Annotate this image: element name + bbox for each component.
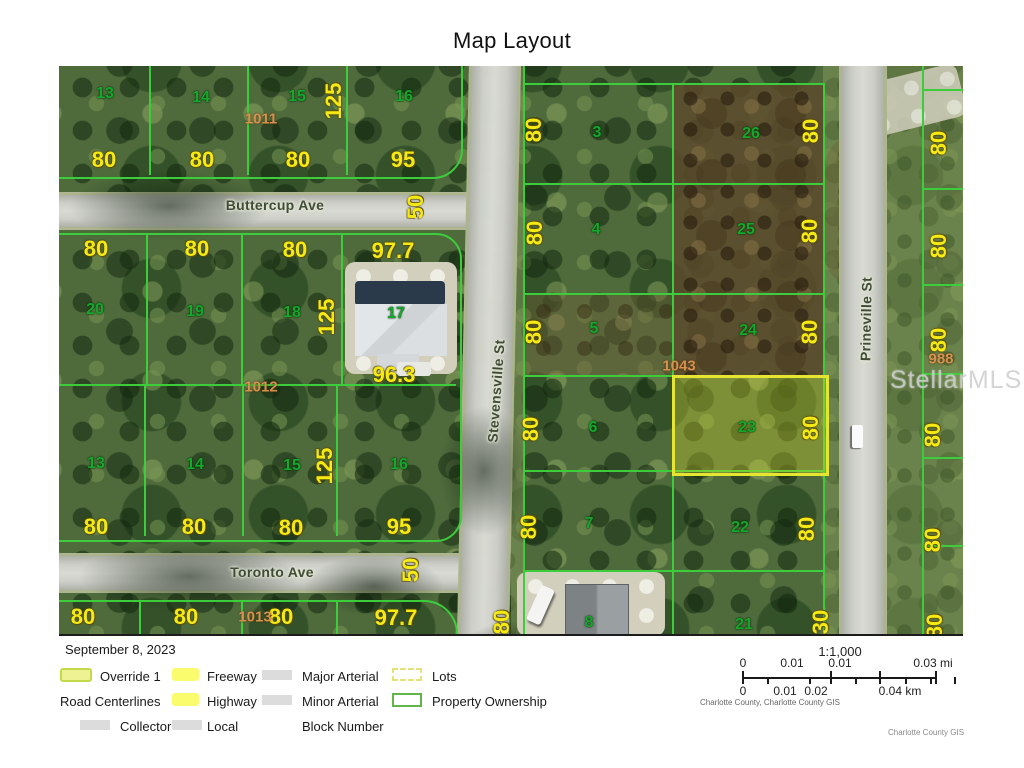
dimension-label: 80 — [185, 236, 209, 262]
legend-label: Local — [207, 719, 238, 734]
street-label: Buttercup Ave — [226, 197, 325, 213]
legend-row: Road CenterlinesHighwayMinor ArterialPro… — [59, 692, 619, 712]
dimension-label: 80 — [190, 147, 214, 173]
vehicle-on-road — [852, 425, 863, 448]
legend-swatch-collector — [80, 720, 110, 730]
legend-label: Highway — [207, 694, 257, 709]
dimension-label: 80 — [798, 119, 824, 143]
dimension-label: 80 — [798, 416, 824, 440]
dimension-label: 80 — [174, 604, 198, 630]
dimension-label: 80 — [279, 515, 303, 541]
building-lot-8 — [565, 584, 629, 636]
dimension-label: 95 — [387, 514, 411, 540]
legend-swatch-freeway — [172, 668, 199, 681]
dimension-label: 30 — [808, 610, 834, 634]
scale-tick-label: 0.01 — [780, 656, 803, 670]
dimension-label: 80 — [926, 328, 952, 352]
lot-number-label: 6 — [589, 419, 598, 437]
dimension-label: 125 — [314, 299, 340, 336]
lot-number-label: 23 — [738, 419, 756, 437]
dimension-label: 50 — [403, 195, 429, 219]
dimension-label: 50 — [398, 558, 424, 582]
lot-number-label: 26 — [742, 125, 760, 143]
lot-number-label: 25 — [737, 221, 755, 239]
lot-number-label: 17 — [387, 305, 405, 323]
legend-swatch-arterial — [262, 670, 292, 680]
scale-tick-label: 0.04 km — [879, 684, 922, 698]
dimension-label: 80 — [521, 118, 547, 142]
lot-number-label: 15 — [288, 88, 306, 106]
dimension-label: 80 — [286, 147, 310, 173]
dimension-label: 80 — [797, 219, 823, 243]
lot-number-label: 16 — [395, 88, 413, 106]
scale-tick-label: 0.02 — [804, 684, 827, 698]
lot-number-label: 19 — [186, 303, 204, 321]
scale-tick-label: 0 — [740, 656, 747, 670]
lot-number-label: 18 — [283, 304, 301, 322]
dimension-label: 80 — [926, 234, 952, 258]
lot-number-label: 13 — [96, 85, 114, 103]
map-date: September 8, 2023 — [65, 642, 176, 657]
block-number-label: 988 — [928, 351, 953, 368]
scale-tick-label: 0.03 mi — [913, 656, 952, 670]
legend-label: Freeway — [207, 669, 257, 684]
legend-swatch-lots — [392, 668, 422, 681]
legend-swatch-local — [172, 720, 202, 730]
lot-number-label: 3 — [593, 124, 602, 142]
lot-number-label: 15 — [283, 457, 301, 475]
block-number-label: 1012 — [244, 379, 277, 396]
legend-label: Road Centerlines — [60, 694, 160, 709]
lot-number-label: 22 — [731, 519, 749, 537]
legend-label: Override 1 — [100, 669, 161, 684]
lot-number-label: 7 — [585, 515, 594, 533]
lot-number-label: 8 — [585, 614, 594, 632]
legend-row: CollectorLocalBlock Number — [59, 717, 619, 737]
gis-credit: Charlotte County GIS — [888, 728, 964, 737]
dimension-label: 80 — [522, 221, 548, 245]
scale-tick-label: 0.01 — [773, 684, 796, 698]
lot-number-label: 14 — [186, 456, 204, 474]
dimension-label: 80 — [797, 320, 823, 344]
dimension-label: 80 — [71, 604, 95, 630]
dimension-label: 80 — [518, 417, 544, 441]
legend-swatch-override — [60, 668, 92, 682]
legend-label: Lots — [432, 669, 457, 684]
legend-label: Major Arterial — [302, 669, 379, 684]
legend-label: Block Number — [302, 719, 384, 734]
scale-tick-label: 0 — [740, 684, 747, 698]
dimension-label: 80 — [92, 147, 116, 173]
dimension-label: 80 — [926, 131, 952, 155]
dimension-label: 80 — [489, 610, 515, 634]
lot-number-label: 21 — [735, 616, 753, 634]
lot-number-label: 13 — [87, 455, 105, 473]
page: { "title": "Map Layout", "date": "Septem… — [0, 0, 1024, 768]
page-title: Map Layout — [0, 28, 1024, 54]
scale-tick-label: 0.01 — [828, 656, 851, 670]
block-number-label: 1043 — [662, 358, 695, 375]
scale-attribution: Charlotte County, Charlotte County GIS — [700, 698, 840, 707]
legend-swatch-ownership — [392, 693, 422, 707]
lot-number-label: 24 — [739, 322, 757, 340]
lot-number-label: 14 — [192, 89, 210, 107]
dimension-label: 80 — [920, 423, 946, 447]
dimension-label: 97.7 — [375, 605, 418, 631]
lot-number-label: 20 — [86, 301, 104, 319]
scale-bar-graphic — [742, 671, 937, 684]
map-canvas: Buttercup AveToronto AveStevensville StP… — [59, 66, 963, 636]
dimension-label: 80 — [922, 614, 948, 636]
dimension-label: 80 — [794, 517, 820, 541]
legend-label: Collector — [120, 719, 171, 734]
dimension-label: 125 — [312, 448, 338, 485]
block-number-label: 1013 — [238, 609, 271, 626]
dimension-label: 80 — [521, 320, 547, 344]
dimension-label: 80 — [920, 528, 946, 552]
legend: September 8, 2023 Override 1FreewayMajor… — [59, 640, 619, 744]
dimension-label: 80 — [269, 604, 293, 630]
legend-swatch-arterial — [262, 695, 292, 705]
dimension-label: 80 — [182, 514, 206, 540]
lot-number-label: 5 — [590, 320, 599, 338]
lot-number-label: 16 — [390, 456, 408, 474]
dimension-label: 97.7 — [372, 238, 415, 264]
dimension-label: 80 — [84, 514, 108, 540]
legend-swatch-highway — [172, 693, 199, 706]
dimension-label: 80 — [283, 237, 307, 263]
block-number-label: 1011 — [245, 111, 278, 128]
dimension-label: 80 — [516, 515, 542, 539]
street-label: Toronto Ave — [230, 564, 314, 580]
street-label: Prineville St — [857, 277, 874, 361]
dimension-label: 96.3 — [373, 362, 416, 388]
legend-row: Override 1FreewayMajor ArterialLots — [59, 667, 619, 687]
legend-label: Minor Arterial — [302, 694, 379, 709]
dimension-label: 125 — [321, 83, 347, 120]
lot-number-label: 4 — [592, 221, 601, 239]
scale-bar: 1:1,000 00.010.010.03 mi 00.010.020.04 k… — [700, 644, 990, 714]
dimension-label: 95 — [391, 147, 415, 173]
dimension-label: 80 — [84, 236, 108, 262]
legend-label: Property Ownership — [432, 694, 547, 709]
watermark: StellarMLS — [890, 366, 1022, 395]
